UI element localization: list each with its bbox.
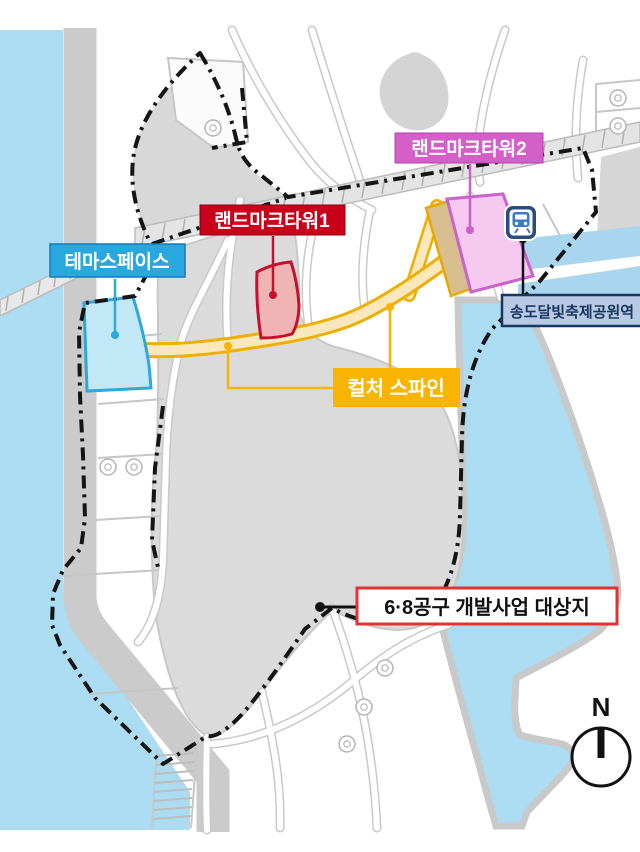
label-project-site: 6·8공구 개발사업 대상지 — [357, 588, 617, 624]
label-culture-spine-text: 컬처 스파인 — [347, 377, 445, 400]
gray-block-northeast — [597, 147, 640, 236]
label-landmark-tower-2: 랜드마크타워2 — [395, 133, 543, 163]
label-project-site-text: 6·8공구 개발사업 대상지 — [384, 596, 590, 619]
label-station-text: 송도달빛축제공원역 — [510, 303, 634, 321]
landmark1-parcel — [257, 262, 299, 338]
songdo-district-map: 테마스페이스 랜드마크타워1 랜드마크타워2 컬처 스파인 송도달빛축제공원역 … — [0, 0, 640, 852]
label-station: 송도달빛축제공원역 — [502, 295, 640, 326]
label-theme-space-text: 테마스페이스 — [65, 251, 170, 273]
label-landmark-tower-2-text: 랜드마크타워2 — [411, 138, 526, 160]
compass-n-label: N — [592, 692, 611, 722]
label-theme-space: 테마스페이스 — [50, 244, 185, 277]
label-landmark-tower-1-text: 랜드마크타워1 — [214, 210, 330, 232]
map-canvas: 테마스페이스 랜드마크타워1 랜드마크타워2 컬처 스파인 송도달빛축제공원역 … — [0, 0, 640, 852]
label-culture-spine: 컬처 스파인 — [333, 368, 460, 407]
train-station-icon — [505, 205, 537, 240]
label-landmark-tower-1: 랜드마크타워1 — [200, 205, 345, 235]
